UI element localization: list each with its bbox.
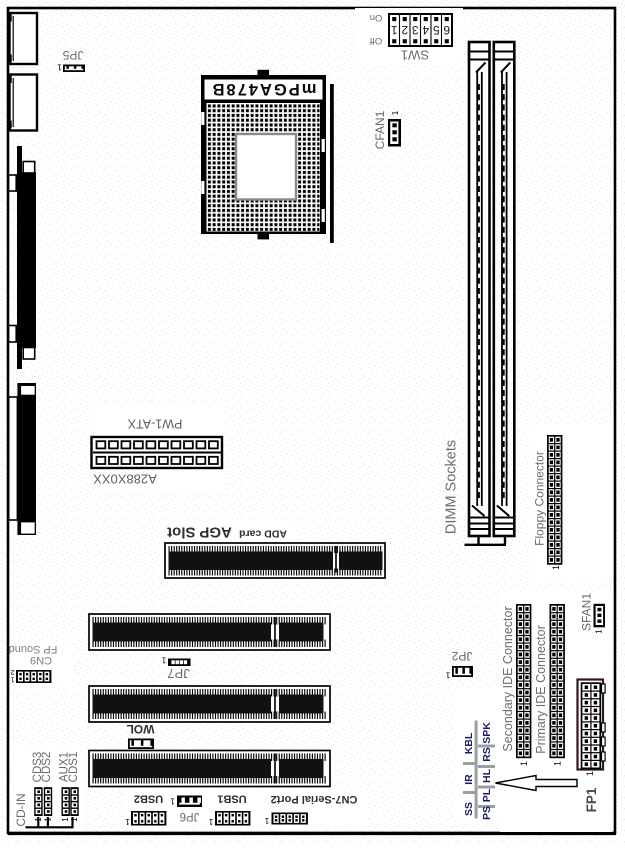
svg-text:PS: PS xyxy=(481,806,493,820)
svg-text:RS: RS xyxy=(481,747,493,762)
svg-text:IR: IR xyxy=(463,774,475,785)
svg-text:CFAN1: CFAN1 xyxy=(373,110,387,149)
svg-text:1: 1 xyxy=(551,565,561,570)
svg-text:CDS2: CDS2 xyxy=(41,752,53,783)
svg-text:USB2: USB2 xyxy=(134,793,163,805)
svg-text:ADD card: ADD card xyxy=(239,527,287,539)
svg-text:Floppy Connector: Floppy Connector xyxy=(533,451,547,546)
svg-text:1: 1 xyxy=(10,676,14,683)
svg-text:3: 3 xyxy=(412,23,419,37)
svg-text:2: 2 xyxy=(10,668,14,675)
svg-text:1: 1 xyxy=(519,761,529,766)
svg-text:1: 1 xyxy=(125,817,130,826)
svg-text:Off: Off xyxy=(369,35,382,46)
svg-text:4: 4 xyxy=(422,23,429,37)
svg-text:PL: PL xyxy=(481,788,493,802)
svg-text:1: 1 xyxy=(70,817,79,822)
svg-text:On: On xyxy=(370,12,383,23)
svg-text:FP Sound: FP Sound xyxy=(9,643,58,655)
svg-text:SPK: SPK xyxy=(481,722,493,744)
svg-text:JP2: JP2 xyxy=(451,649,472,663)
svg-text:1: 1 xyxy=(208,817,213,826)
svg-text:1: 1 xyxy=(445,671,450,680)
svg-text:JP6: JP6 xyxy=(180,810,200,822)
svg-text:CD-IN: CD-IN xyxy=(14,793,28,826)
svg-text:AGP Slot: AGP Slot xyxy=(167,523,232,540)
svg-text:HL: HL xyxy=(481,768,493,783)
svg-text:1: 1 xyxy=(61,817,70,822)
svg-text:SS: SS xyxy=(463,802,475,816)
svg-text:1: 1 xyxy=(391,110,400,115)
svg-text:CN9: CN9 xyxy=(30,654,52,666)
svg-text:FP1: FP1 xyxy=(584,787,599,812)
svg-text:SFAN1: SFAN1 xyxy=(580,593,594,631)
svg-text:1: 1 xyxy=(57,63,62,72)
svg-text:CDS1: CDS1 xyxy=(68,752,80,783)
svg-text:1: 1 xyxy=(585,771,595,776)
svg-text:KBL: KBL xyxy=(463,732,475,754)
svg-text:PW1-ATX: PW1-ATX xyxy=(127,417,182,431)
svg-text:5: 5 xyxy=(433,23,440,37)
svg-text:mPGA478B: mPGA478B xyxy=(211,80,317,98)
svg-text:CN7-Serial Port2: CN7-Serial Port2 xyxy=(271,793,358,805)
svg-text:1: 1 xyxy=(170,797,175,806)
svg-text:1: 1 xyxy=(161,656,166,665)
svg-text:JP5: JP5 xyxy=(62,48,83,62)
svg-text:6: 6 xyxy=(443,23,450,37)
svg-text:1: 1 xyxy=(264,816,269,825)
svg-text:DIMM Sockets: DIMM Sockets xyxy=(444,440,460,534)
svg-text:1: 1 xyxy=(553,761,563,766)
svg-text:USB1: USB1 xyxy=(217,793,246,805)
svg-text:WOL: WOL xyxy=(127,722,155,736)
svg-text:2: 2 xyxy=(401,23,408,37)
svg-text:Secondary IDE Connector: Secondary IDE Connector xyxy=(501,606,515,751)
svg-text:A288X0XX: A288X0XX xyxy=(93,471,157,486)
svg-text:1: 1 xyxy=(594,629,603,634)
svg-text:JP7: JP7 xyxy=(167,666,189,681)
svg-text:SW1: SW1 xyxy=(401,47,429,62)
svg-text:Primary IDE Connector: Primary IDE Connector xyxy=(534,625,548,754)
svg-text:1: 1 xyxy=(391,23,398,37)
